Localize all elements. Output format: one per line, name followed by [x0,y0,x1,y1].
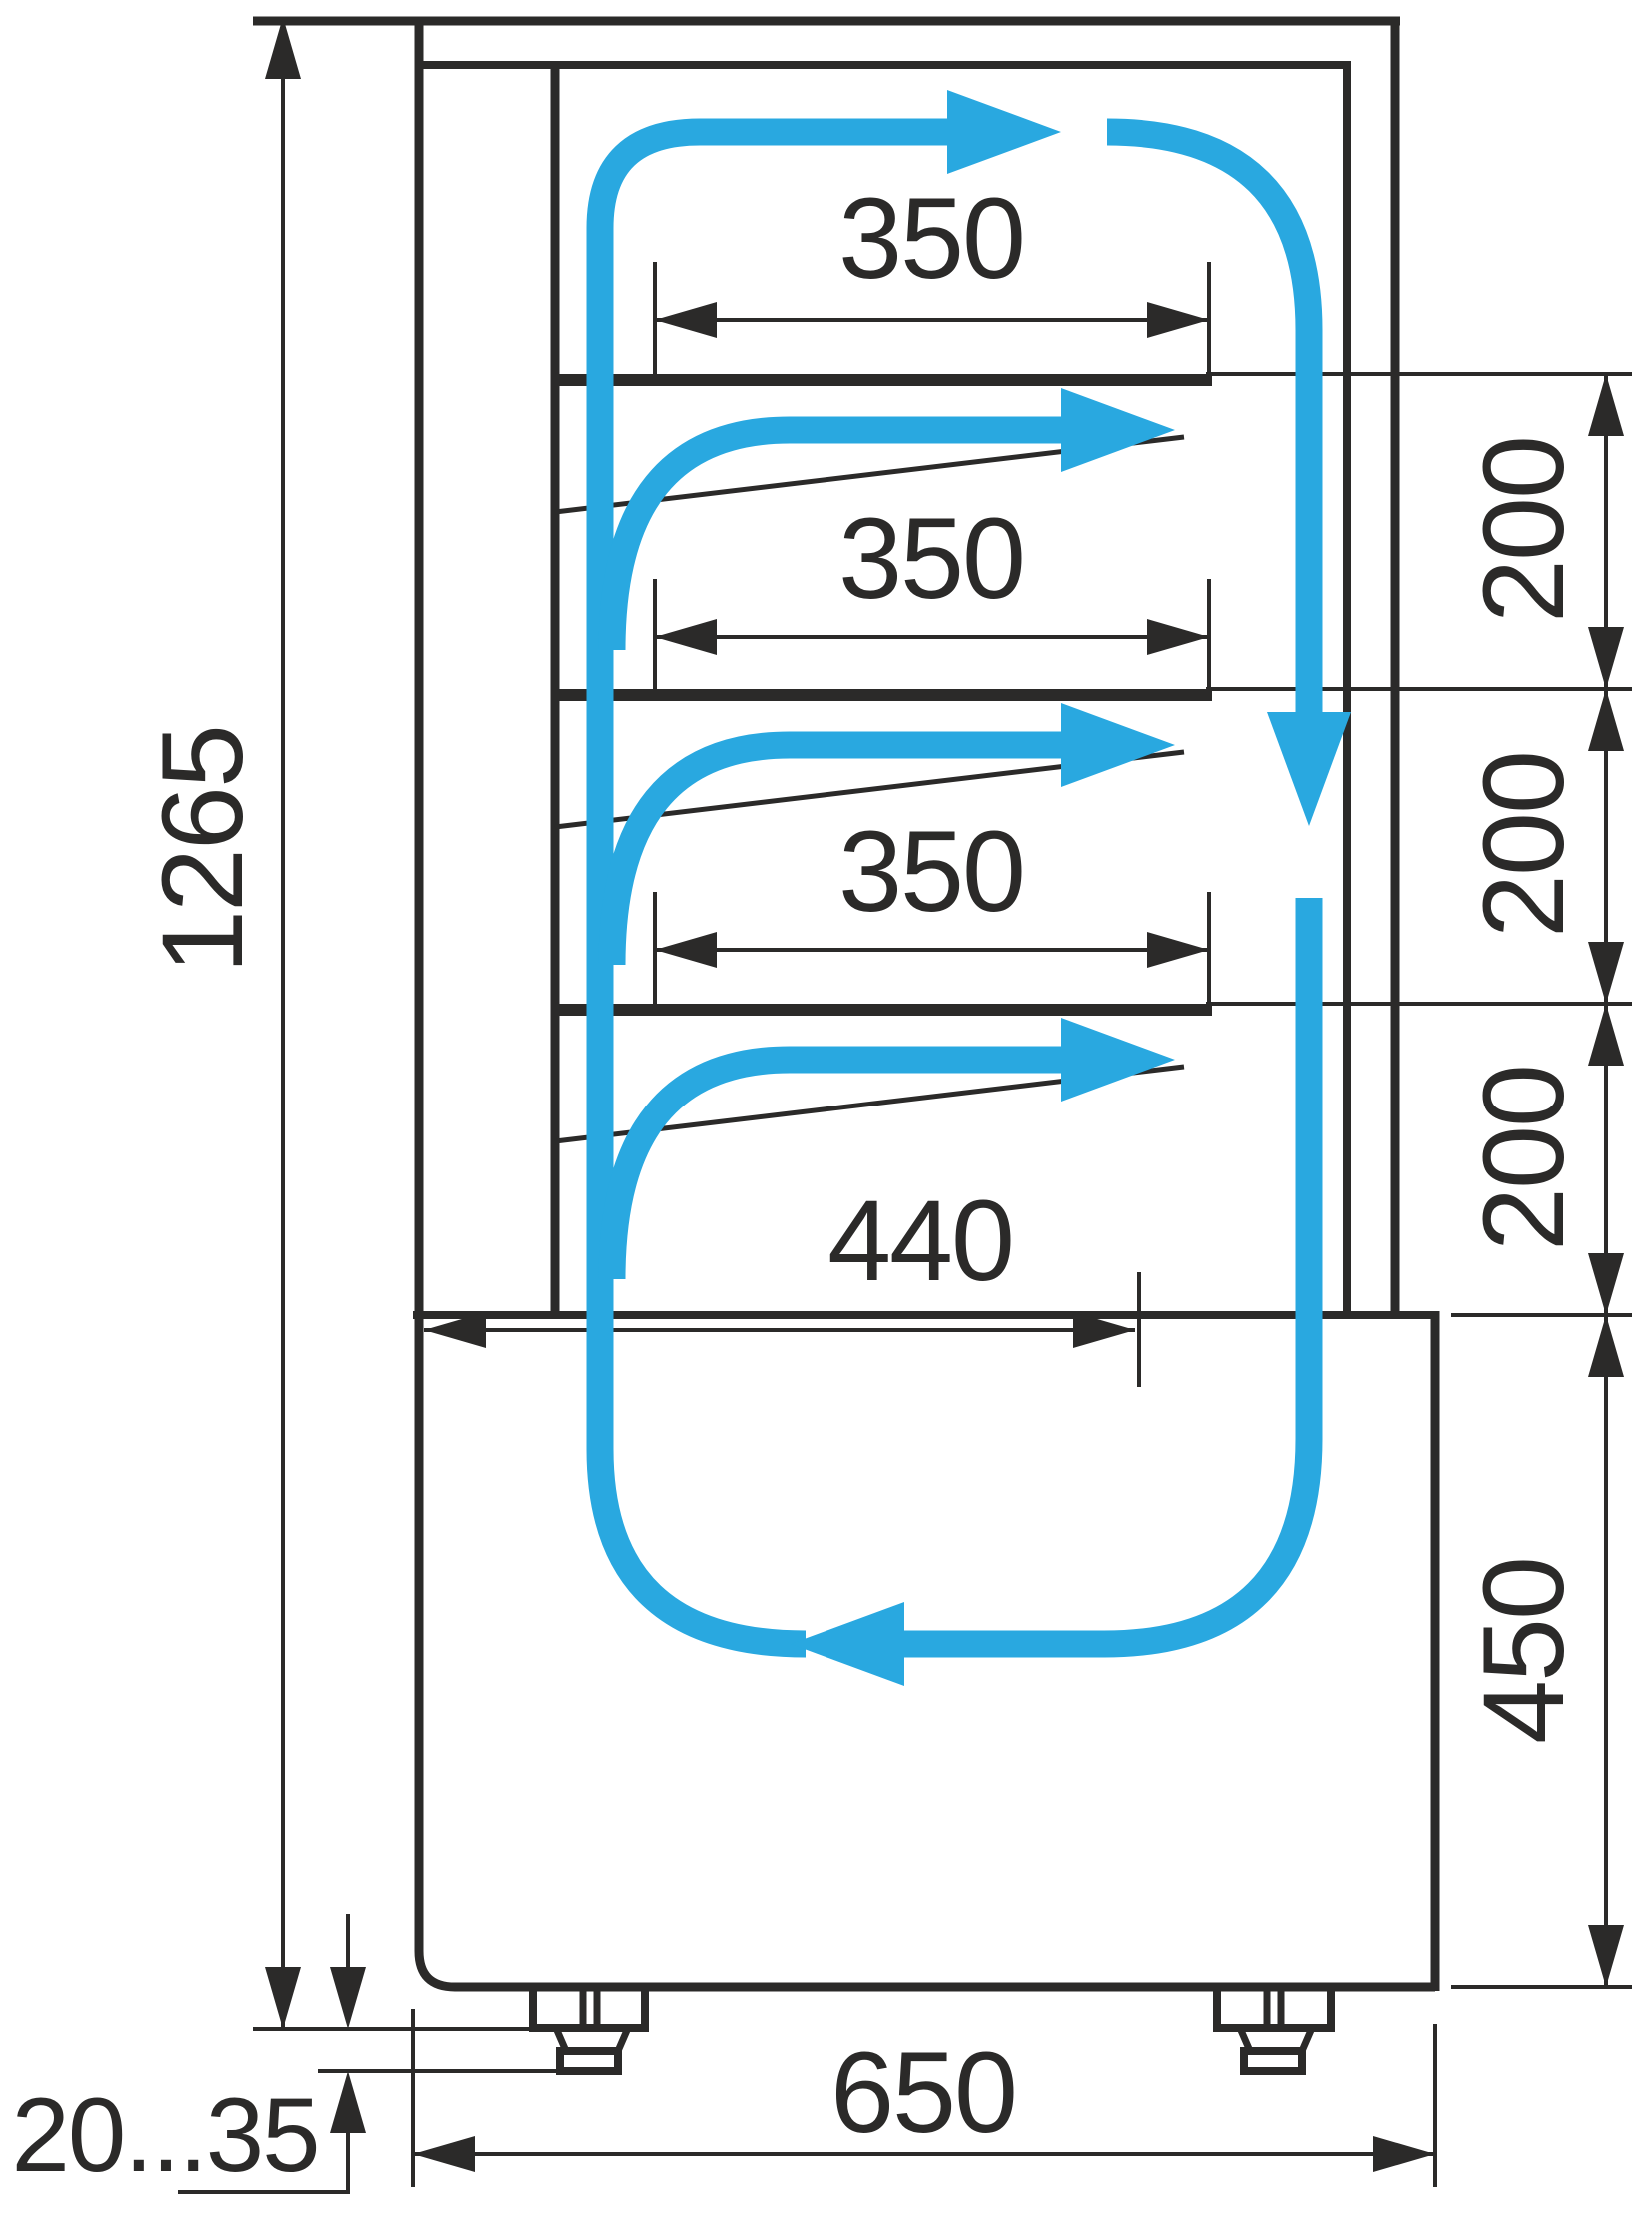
arrow-down-icon [1588,1925,1624,1987]
arrow-up-icon [330,2071,366,2133]
foot-stem [583,1989,597,2028]
label-gap-1: 200 [1460,437,1588,623]
airflow-arrow-shelf2-icon [1061,703,1175,787]
arrow-left-icon [413,2136,475,2172]
dim-gap-1 [1588,374,1624,689]
dimensions [178,17,1632,2192]
label-deck-width: 440 [827,1177,1013,1305]
dimension-labels: 350 350 350 440 1265 200 200 200 450 650… [11,175,1588,2194]
label-depth: 650 [830,2029,1016,2157]
arrow-right-icon [1373,2136,1435,2172]
label-base-height: 450 [1460,1558,1588,1744]
arrow-left-icon [655,932,717,968]
label-shelf-width-2: 350 [838,495,1024,623]
foot-housing [1217,1989,1331,2028]
label-feet-range: 20...35 [11,2077,318,2194]
foot-stem [1267,1989,1281,2028]
foot-left [533,1989,645,2071]
arrow-left-icon [655,302,717,338]
arrow-down-icon [265,1967,301,2029]
arrow-down-icon [1588,1253,1624,1315]
arrow-down-icon [330,1967,366,2029]
arrow-right-icon [1147,932,1209,968]
airflow-arrow-shelf1-icon [1061,388,1175,472]
dim-total-height [253,17,545,2029]
arrow-right-icon [1147,619,1209,655]
label-total-height: 1265 [139,726,267,974]
airflow-arrow-shelf3-icon [1061,1018,1175,1102]
arrow-down-icon [1588,942,1624,1004]
arrow-left-icon [655,619,717,655]
airflow-arrow-down-icon [1267,712,1351,826]
arrow-up-icon [1588,689,1624,751]
dim-base-height [1588,1315,1624,1987]
foot-pad [1244,2051,1302,2071]
foot-right [1217,1989,1331,2071]
airflow-arrow-top-icon [947,90,1061,174]
label-gap-2: 200 [1460,752,1588,938]
arrow-up-icon [1588,1004,1624,1066]
foot-pad [560,2051,618,2071]
label-shelf-width-1: 350 [838,175,1024,303]
arrow-up-icon [1588,1315,1624,1377]
arrow-up-icon [265,17,301,79]
drawing-canvas: 350 350 350 440 1265 200 200 200 450 650… [0,0,1652,2213]
label-gap-3: 200 [1460,1066,1588,1251]
dim-gap-3 [1588,1004,1624,1315]
dim-deck-width [424,1272,1139,1387]
foot-housing [533,1989,645,2028]
airflow-arrow-return-icon [791,1602,904,1686]
arrow-down-icon [1588,627,1624,689]
dim-gap-2 [1588,689,1624,1004]
arrow-right-icon [1147,302,1209,338]
label-shelf-width-3: 350 [838,808,1024,936]
arrow-up-icon [1588,374,1624,436]
display-case-diagram: 350 350 350 440 1265 200 200 200 450 650… [0,0,1652,2213]
